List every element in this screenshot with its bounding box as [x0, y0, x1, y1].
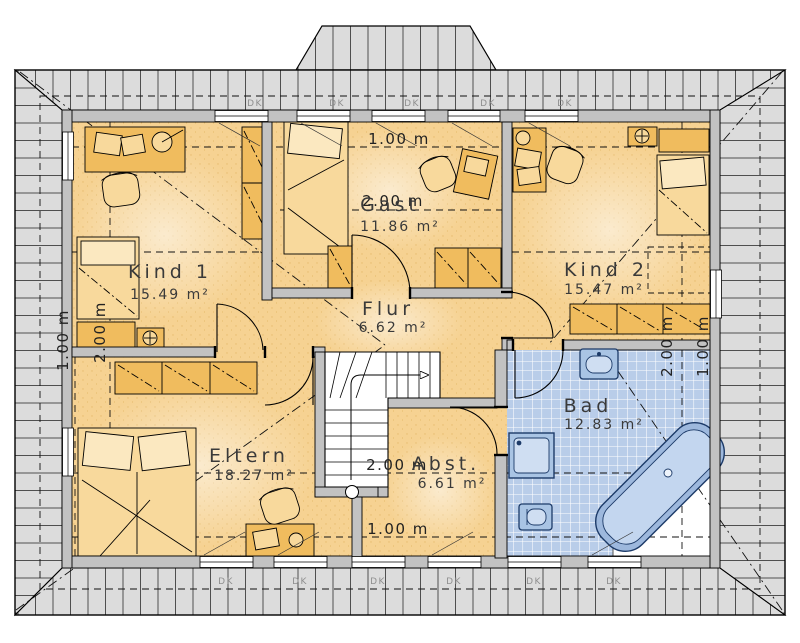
wall-kind1-gast	[262, 122, 272, 300]
kind2-desk	[513, 128, 546, 192]
kind1-chair	[101, 171, 141, 209]
room-area-kind1: 15.49 m²	[130, 287, 210, 303]
eltern-bed	[78, 428, 196, 556]
kind1-plant-table	[137, 328, 164, 348]
gast-bed	[284, 122, 348, 254]
kind2-wardrobe	[570, 304, 710, 334]
room-label-kind2: Kind 2	[564, 259, 648, 281]
sink	[580, 349, 618, 379]
dk-label: DK	[446, 577, 462, 587]
dim-top-1m: 1.00 m	[368, 130, 430, 148]
dk-label: DK	[557, 99, 573, 109]
dim-right-1m: 1.00 m	[694, 315, 712, 377]
dk-label: DK	[370, 577, 386, 587]
wall-gast-flur-b	[410, 288, 512, 298]
room-area-bad: 12.83 m²	[564, 417, 644, 433]
kind2-plant-table	[628, 127, 657, 146]
dk-label: DK	[218, 577, 234, 587]
dk-label: DK	[526, 577, 542, 587]
dk-label: DK	[247, 99, 263, 109]
dim-left-2m: 2.00 m	[91, 301, 109, 363]
room-label-eltern: Eltern	[209, 445, 289, 467]
eltern-desk	[246, 524, 314, 558]
wall-abst-bad-a	[495, 350, 507, 407]
eltern-wardrobe	[115, 362, 257, 394]
stairs-newel-post	[346, 486, 359, 499]
dk-label: DK	[404, 99, 420, 109]
roof-band-top	[15, 70, 785, 110]
dim-left-1m: 1.00 m	[54, 309, 72, 371]
dk-label: DK	[606, 577, 622, 587]
dim-bottom-1m: 1.00 m	[367, 520, 429, 538]
room-area-flur: 6.62 m²	[359, 320, 428, 336]
toilet	[519, 504, 552, 530]
room-area-gast: 11.86 m²	[360, 219, 440, 235]
roof-dormer	[296, 26, 496, 70]
room-label-gast: Gast	[360, 194, 420, 216]
room-area-kind2: 15.47 m²	[564, 282, 644, 298]
wall-gast-flur-a	[272, 288, 352, 298]
roof-band-right	[720, 70, 785, 615]
room-label-abst: Abst.	[412, 453, 480, 475]
shower	[509, 433, 554, 478]
room-label-bad: Bad	[564, 395, 613, 417]
room-label-kind1: Kind 1	[128, 261, 212, 283]
room-label-flur: Flur	[362, 298, 414, 320]
kind1-desk	[85, 127, 185, 172]
kind2-bed	[657, 129, 709, 235]
dk-label: DK	[292, 577, 308, 587]
wall-stairs-left	[315, 352, 325, 497]
wall-eltern-abst	[352, 497, 362, 558]
wall-gast-kind2	[502, 122, 512, 292]
dim-right-2m: 2.00 m	[658, 315, 676, 377]
roof-band-bottom	[15, 568, 785, 615]
wall-abst-bad-b	[495, 455, 507, 558]
room-area-eltern: 18.27 m²	[214, 468, 294, 484]
floor-plan-canvas: 1.00 m 2.00 m 2.00 m 1.00 m 1.00 m 2.00 …	[0, 0, 800, 643]
dk-label: DK	[329, 99, 345, 109]
dk-label: DK	[480, 99, 496, 109]
floor-plan-drawing: 1.00 m 2.00 m 2.00 m 1.00 m 1.00 m 2.00 …	[0, 0, 800, 643]
room-area-abst: 6.61 m²	[418, 476, 487, 492]
